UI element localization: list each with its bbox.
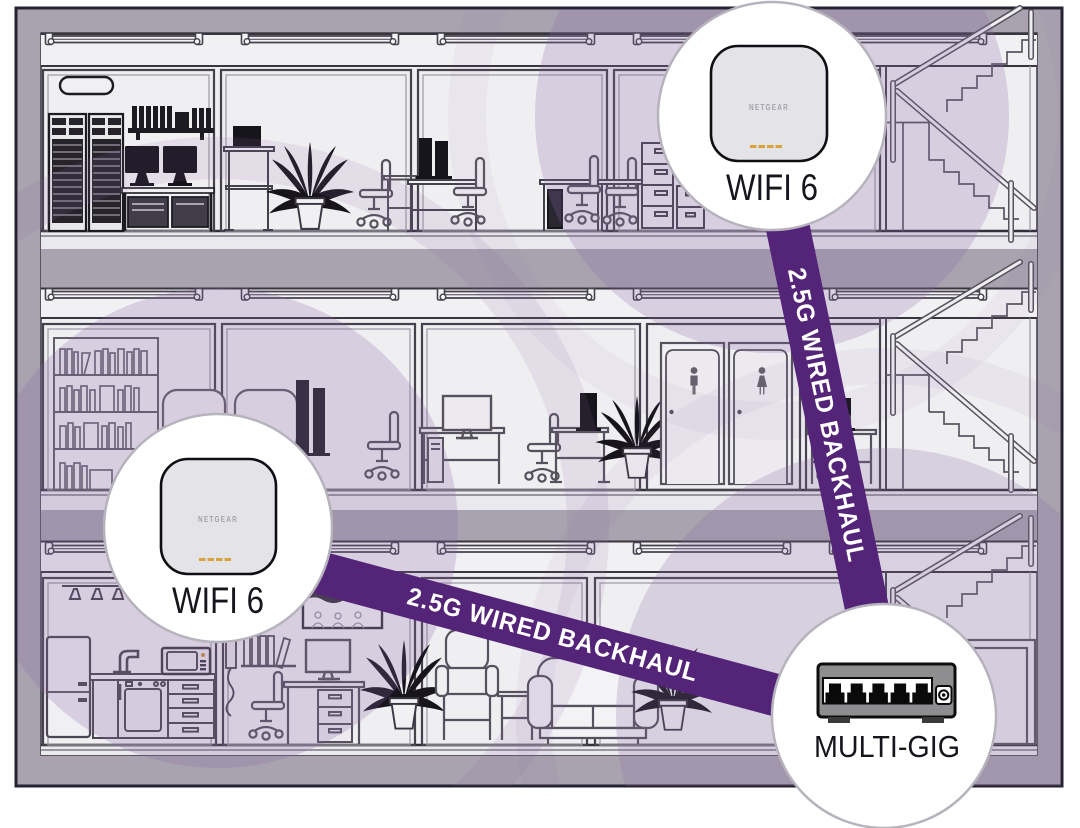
svg-text:NETGEAR: NETGEAR [198,515,238,524]
svg-text:WIFI 6: WIFI 6 [726,167,818,208]
svg-text:WIFI 6: WIFI 6 [172,580,264,621]
svg-text:NETGEAR: NETGEAR [749,103,789,112]
svg-text:MULTI-GIG: MULTI-GIG [814,729,960,764]
